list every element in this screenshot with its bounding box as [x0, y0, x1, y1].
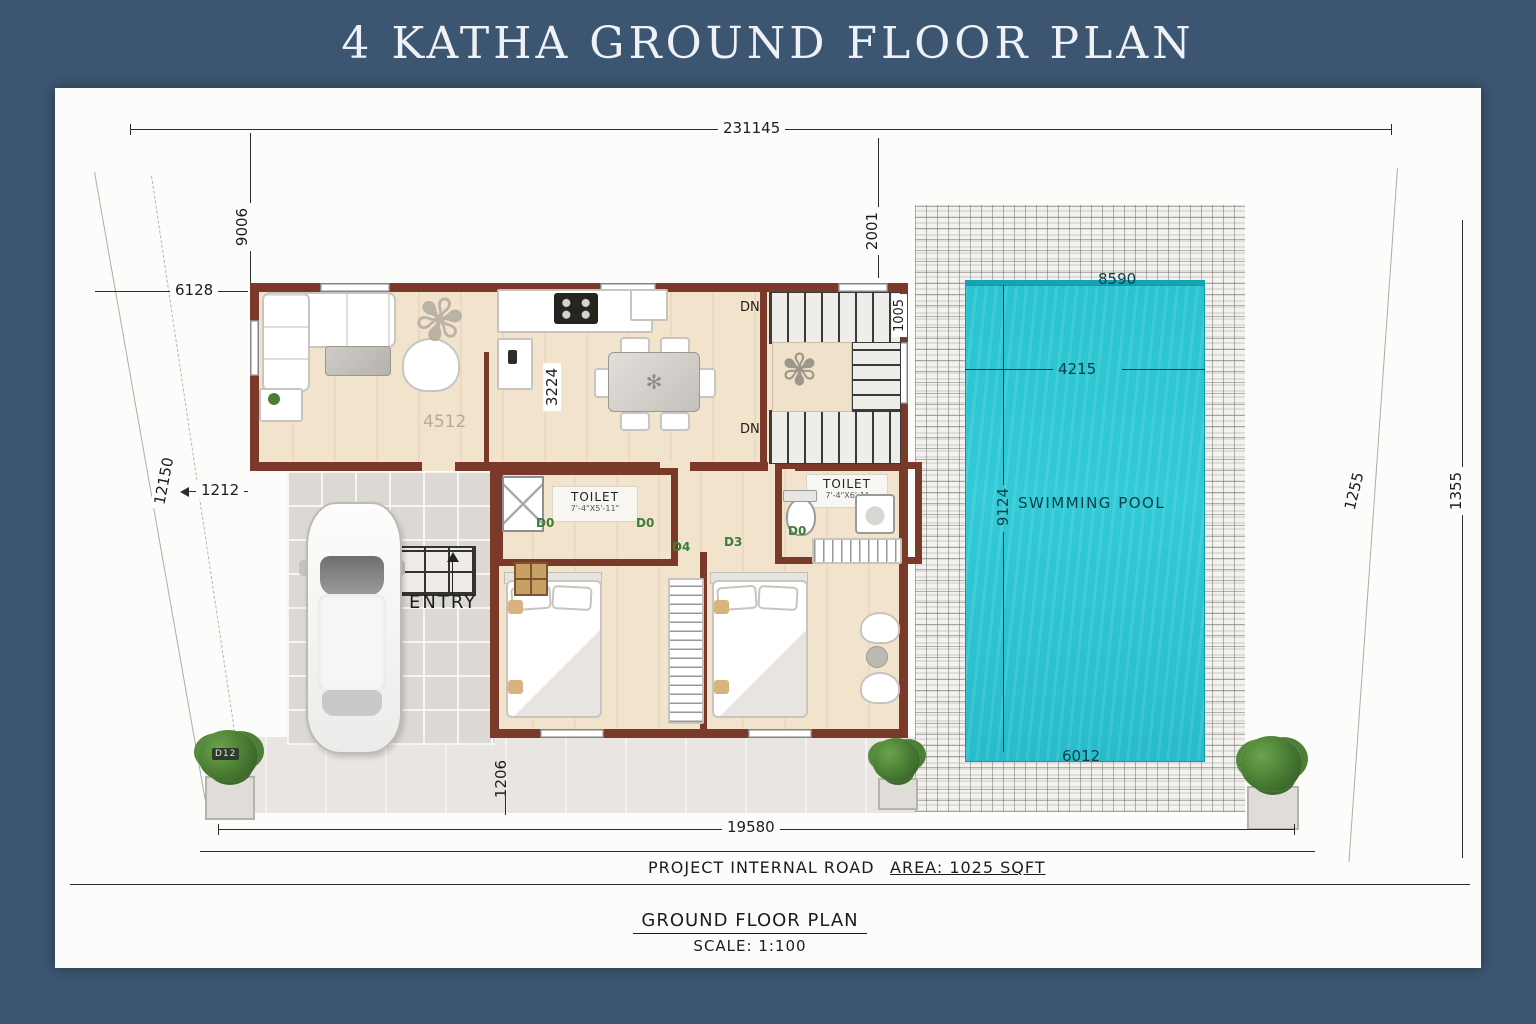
bed-2-cushion: [714, 680, 729, 694]
door-tag: D0: [536, 516, 554, 530]
pool-dim-line-h2: [1003, 532, 1004, 752]
road-line-bottom: [70, 884, 1470, 885]
floor-plan-sheet: 4 KATHA GROUND FLOOR PLAN 231145 9006 61…: [0, 0, 1536, 1024]
dresser: [812, 538, 902, 564]
toilet-tank: [783, 490, 817, 502]
bed-2-cushion: [714, 600, 729, 614]
pool-dim-line-h: [1003, 285, 1004, 485]
lounge-chair: [860, 672, 900, 704]
entry-arrow-shaft: [452, 560, 453, 594]
bed-1-cushion: [508, 600, 523, 614]
kitchen-sink-unit: [497, 338, 533, 390]
bathroom-sink: [855, 494, 895, 534]
sink-faucet: [508, 350, 517, 364]
stairs-art-panel: ✾: [772, 342, 852, 412]
dim-tick: [218, 824, 219, 835]
plant-tag: D12: [212, 748, 239, 760]
toilet-1-label: TOILET: [553, 487, 637, 504]
door-tag: D4: [672, 540, 690, 554]
plant-pot: [1247, 786, 1299, 830]
dim-top-width: 231145: [718, 119, 785, 137]
bed-2-pillow: [757, 585, 798, 611]
pool-dim-line-w2: [1122, 369, 1205, 370]
dim-pool-height: 9124: [994, 488, 1012, 526]
stairs-mid-flight: [852, 342, 901, 412]
side-table-round: [866, 646, 888, 668]
plant-left: D12: [196, 730, 262, 818]
stairs-dn-2: DN: [735, 422, 765, 437]
area-label: AREA: 1025 SQFT: [885, 858, 1051, 877]
sofa-chaise: [262, 292, 310, 392]
fridge: [630, 289, 668, 321]
plant-right: [1238, 736, 1306, 828]
dim-living: 4512: [418, 412, 471, 432]
dim-pool-width: 4215: [1058, 360, 1096, 378]
stove: [554, 293, 598, 324]
road-label: PROJECT INTERNAL ROAD: [643, 858, 880, 877]
wardrobe: [668, 578, 704, 724]
dim-arrow-left: [180, 487, 189, 497]
toilet-1-size: 7'-4"X5'-11": [553, 504, 637, 513]
door-tag: D0: [788, 524, 806, 538]
stairs-dn-1: DN: [735, 300, 765, 315]
wall-kitchen-partition: [484, 352, 489, 464]
wall-left-upper: [250, 283, 259, 471]
car: [306, 502, 398, 750]
console-plant: [268, 393, 280, 405]
wall-mid-c: [690, 462, 768, 471]
plant-pot: [205, 776, 255, 820]
dining-table: ✻: [608, 352, 700, 412]
stairs-lower-flight: [769, 410, 901, 464]
plant-foliage: [1240, 736, 1302, 792]
bed-1-pillow: [551, 585, 592, 611]
entry-label: ENTRY: [404, 592, 482, 613]
dim-line-1206: [505, 795, 506, 815]
stairs-art: ✾: [781, 345, 818, 396]
dim-pool-top: 8590: [1098, 270, 1136, 288]
pool-dim-line-w: [965, 369, 1053, 370]
plant-pool: [870, 738, 922, 810]
dim-garage-offset: 1212: [196, 481, 244, 499]
entry-arrow-head: [447, 552, 459, 562]
plant-foliage: [872, 738, 920, 782]
dim-left-upper-v: 9006: [233, 203, 251, 251]
window-bottom-1: [540, 729, 604, 738]
dim-left-upper-h: 6128: [170, 281, 218, 299]
dining-chair: [660, 412, 690, 431]
window-bottom-2: [748, 729, 812, 738]
window-top-3: [838, 283, 888, 292]
title-block: GROUND FLOOR PLAN SCALE: 1:100: [600, 910, 900, 955]
coffee-table: [325, 346, 391, 376]
door-tag: D3: [724, 535, 742, 549]
toilet-2-label: TOILET: [807, 475, 887, 491]
dim-tick: [130, 124, 131, 135]
car-windshield: [320, 556, 384, 596]
dim-living-v: 3224: [543, 363, 561, 411]
window-pane: [514, 562, 548, 596]
road-line-top: [200, 851, 1315, 852]
pool-label: SWIMMING POOL: [1018, 494, 1165, 512]
dim-bed-offset: 1206: [492, 755, 510, 803]
dim-bottom-width: 19580: [722, 818, 780, 836]
window-top-1: [320, 283, 390, 292]
stairs-upper-flight: [769, 292, 901, 344]
dim-line-1355: [1462, 220, 1463, 858]
side-console: [259, 388, 303, 422]
dim-right-height: 1355: [1447, 467, 1465, 515]
page-title: 4 KATHA GROUND FLOOR PLAN: [0, 0, 1536, 88]
dining-chair: [620, 412, 650, 431]
bed-1-cushion: [508, 680, 523, 694]
car-rear-window: [322, 690, 382, 716]
plan-name: GROUND FLOOR PLAN: [633, 910, 866, 934]
plant-pot: [878, 778, 918, 810]
dim-deck-top: 2001: [863, 207, 881, 255]
entry-steps: [398, 546, 476, 596]
lounge-chair: [860, 612, 900, 644]
dim-stairs-side: 1005: [892, 294, 907, 337]
window-left: [250, 320, 259, 376]
plan-scale: SCALE: 1:100: [600, 937, 900, 955]
toilet-1-plate: TOILET 7'-4"X5'-11": [552, 486, 638, 522]
door-tag: D0: [636, 516, 654, 530]
dim-tick: [1294, 824, 1295, 835]
dim-tick: [1391, 124, 1392, 135]
car-roof: [318, 594, 386, 692]
wall-mid-a: [250, 462, 422, 471]
dim-pool-bottom: 6012: [1062, 747, 1100, 765]
